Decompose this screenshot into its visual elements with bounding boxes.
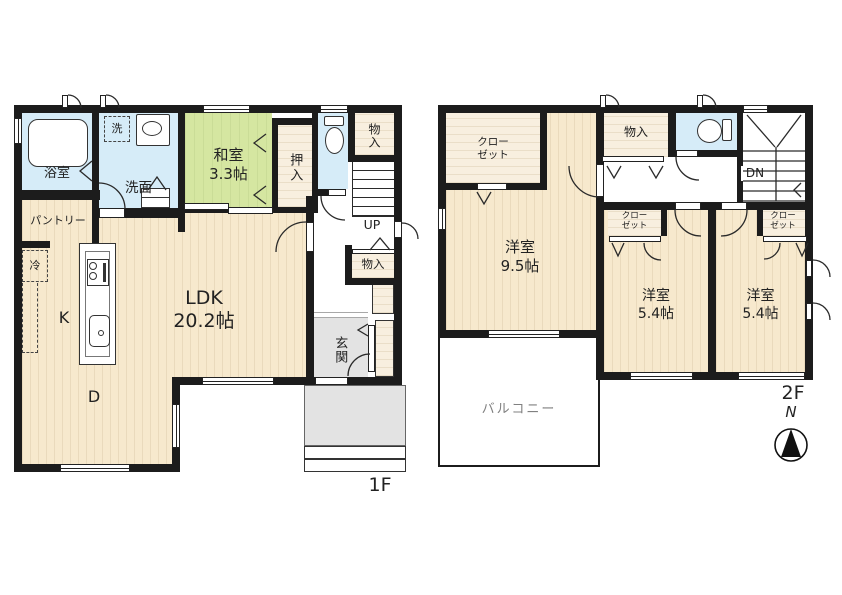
washroom-door-leaf [99,208,125,218]
door-arc [813,260,830,277]
porch-step-1 [304,446,406,459]
hall-ldk-door-leaf [306,222,314,252]
storage-folding-door [352,249,395,254]
toilet-bowl-1f [325,127,344,154]
entrance-label: 玄関 [331,326,347,374]
wall [747,202,813,210]
door-arc [676,157,699,180]
toilet-door-leaf [328,189,346,196]
storage-2f-label: 物入 [604,125,668,140]
toilet-tank-2f [722,119,732,141]
shoe-cabinet-door [368,325,375,372]
stove-grill [103,263,106,282]
door-mark [649,166,663,178]
window [320,105,348,113]
closet-b-door [763,236,807,242]
toilet-tank-1f [324,116,344,126]
room-54a-label: 洋室 5.4帖 [606,288,706,323]
vent-door-leaf [600,95,606,108]
casement-window-leaf [806,260,812,277]
stairs-arrow [794,183,801,197]
door-mark [607,166,621,178]
wall [668,113,676,157]
wall [272,118,315,125]
window [203,105,250,113]
toilet-2f-door-leaf [676,150,698,157]
wall [701,202,721,210]
stairs-1f [352,162,394,217]
wall [178,113,185,232]
east-door-leaf [394,221,402,238]
window [60,464,130,472]
window [202,377,274,385]
closet-nw-label: クロー ゼット [446,136,540,162]
stove-burner [89,262,97,270]
bathroom-label: 浴室 [22,166,92,182]
washroom-label: 洗面 [99,180,178,197]
wall [661,210,667,236]
room54b-door-leaf [721,202,747,210]
stairs-2f [743,115,805,201]
balcony-label: バルコニー [448,402,590,418]
ldk-label: LDK 20.2帖 [154,287,254,333]
front-door-leaf [315,377,348,385]
porch [304,385,406,446]
wall [394,105,402,385]
entrance-step-edge [312,312,368,318]
vent-door-leaf [697,95,703,108]
wall [596,197,604,380]
window [172,404,180,448]
shoe-cabinet-lower [375,320,394,377]
sliding-door [228,207,273,214]
closet-b-label: クロー ゼット [760,211,806,231]
storage-hall-label: 物入 [352,257,394,271]
vent-door-leaf [100,95,106,108]
dining-label: D [80,387,108,407]
compass-circle [775,429,807,461]
sliding-door [184,203,229,210]
room95-door-leaf [596,164,604,197]
closet-a-door [609,236,661,242]
bathtub [28,119,88,167]
up-label: UP [350,217,394,233]
window [488,330,560,338]
closet-a-label: クロー ゼット [608,211,661,231]
washbasin-bowl [142,121,162,136]
toilet-bowl-2f [697,119,722,143]
wall [737,113,743,205]
wall [345,278,402,285]
storage-space-dashed [22,283,38,353]
wall [698,150,737,157]
wall [125,208,178,218]
floor-plan: 洗 冷 [0,0,842,595]
porch-step-2 [304,459,406,472]
wall [805,105,813,380]
door-arc [321,196,345,220]
wall [596,202,675,210]
storage-top-label: 物入 [366,117,381,155]
room-95-label: 洋室 9.5帖 [468,238,572,276]
room54a-door-leaf [675,202,701,210]
window [14,118,22,144]
pantry-label: パントリー [14,214,102,228]
door-arc [402,223,418,239]
stove-burner [89,272,97,280]
wall [540,113,547,190]
japanese-room-label: 和室 3.3帖 [185,146,272,184]
window [438,208,446,230]
sink-drain [98,330,104,336]
compass-north-label: N [775,403,807,422]
kitchen-label: K [50,308,78,328]
room-54b-label: 洋室 5.4帖 [713,288,808,323]
wall [14,190,100,200]
wall [14,241,50,248]
refrigerator-label: 冷 [30,259,41,273]
washing-machine: 洗 [104,116,130,142]
compass-needle [781,429,801,457]
wall [272,118,278,207]
window [743,105,768,113]
floor-1f-label: 1F [356,474,404,498]
refrigerator-space: 冷 [22,250,48,282]
washing-machine-label: 洗 [112,122,123,136]
window [738,372,805,380]
vent-door-leaf [62,95,68,108]
wall [348,155,402,162]
door-arc [813,303,830,320]
wall [14,105,22,472]
closet-nw-door [477,183,507,190]
wall [306,252,314,378]
window [630,372,693,380]
dn-label: DN [741,166,769,181]
oshiire-label: 押入 [286,139,302,197]
storage-2f-folding-door [602,156,664,162]
